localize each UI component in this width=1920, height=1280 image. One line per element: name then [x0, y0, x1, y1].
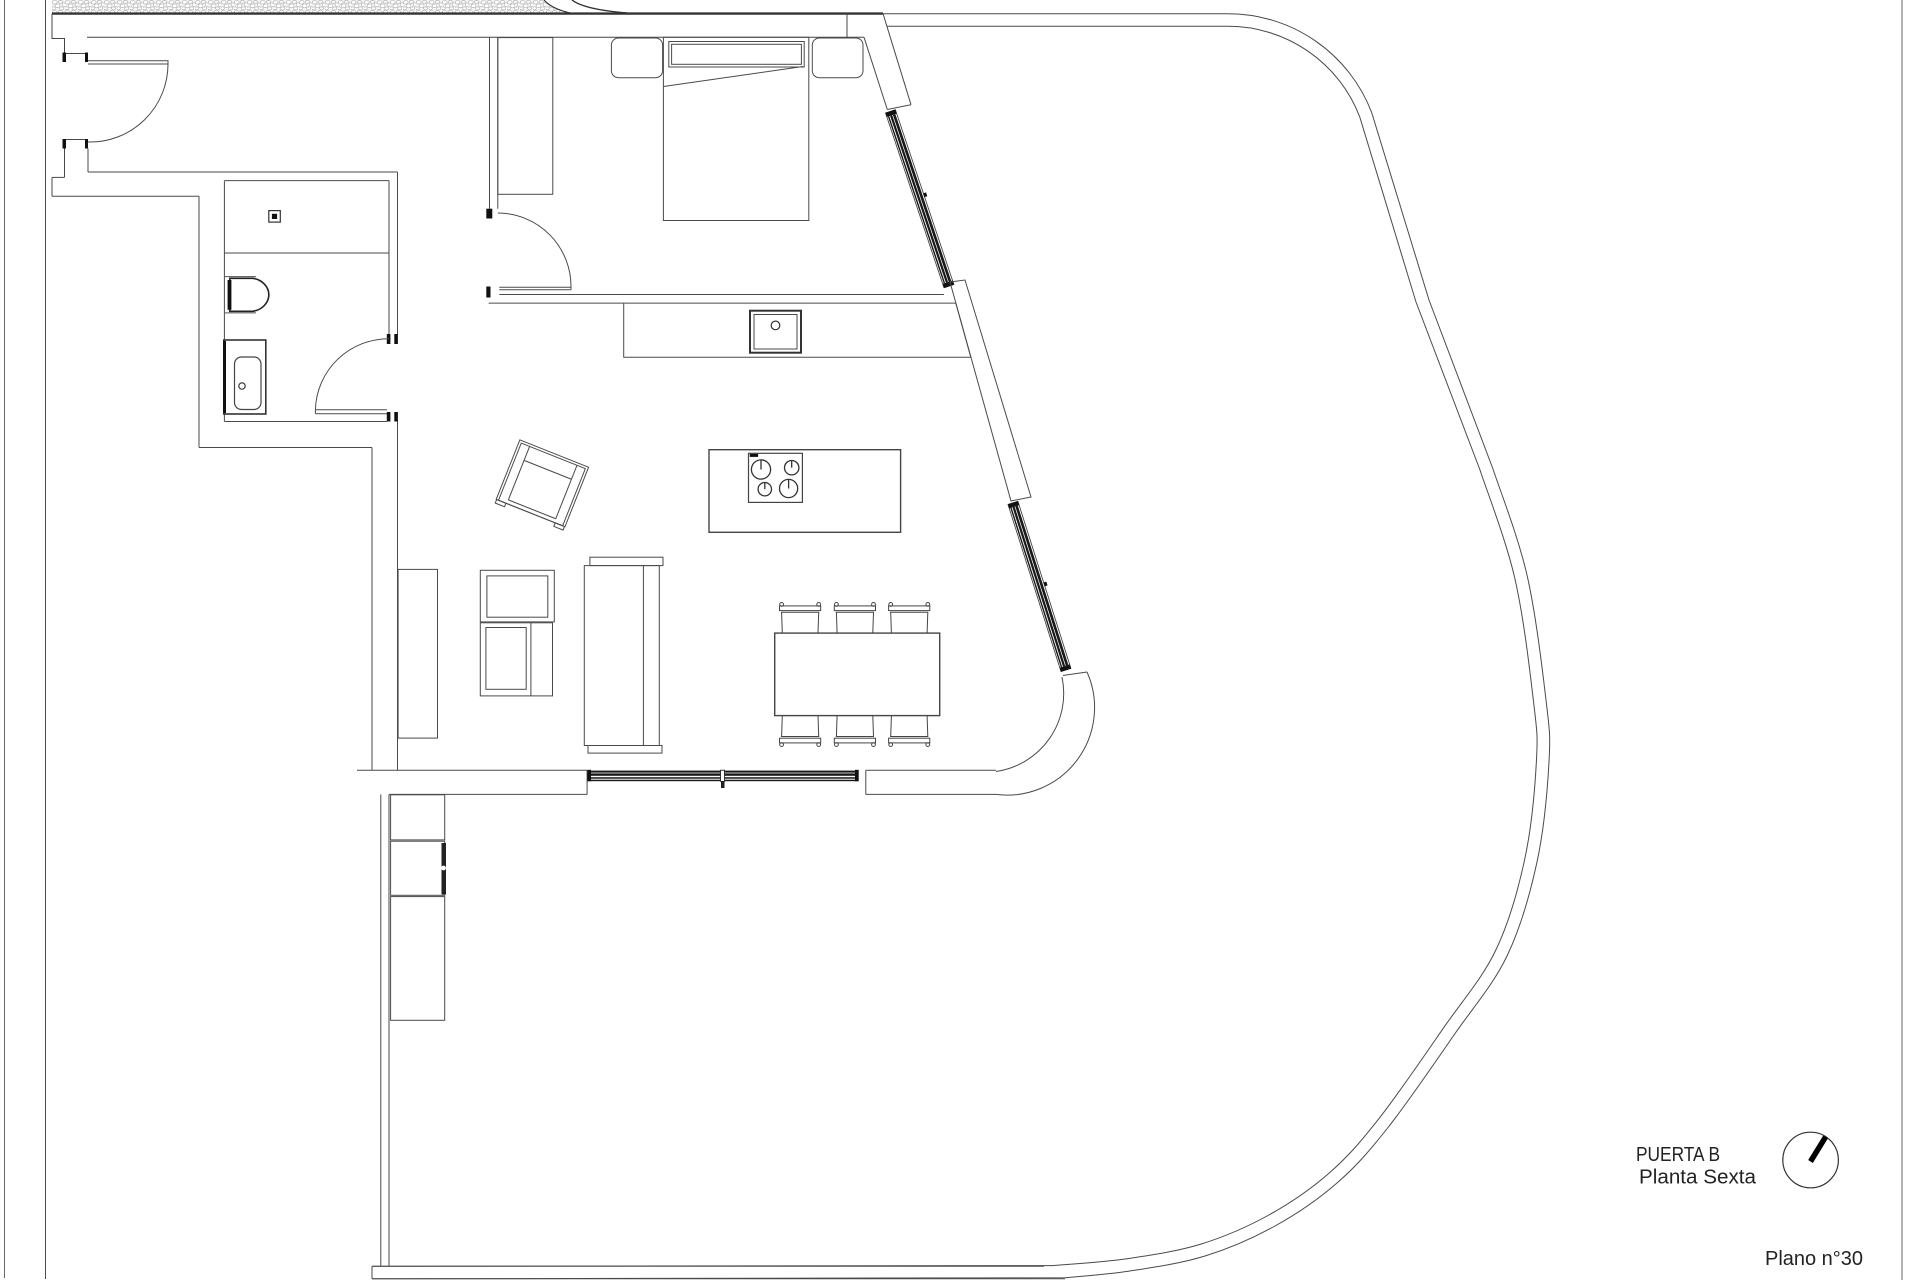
svg-text:Plano n°30: Plano n°30: [1765, 1248, 1863, 1270]
svg-text:Planta Sexta: Planta Sexta: [1639, 1166, 1757, 1189]
svg-text:PUERTA B: PUERTA B: [1636, 1143, 1720, 1166]
